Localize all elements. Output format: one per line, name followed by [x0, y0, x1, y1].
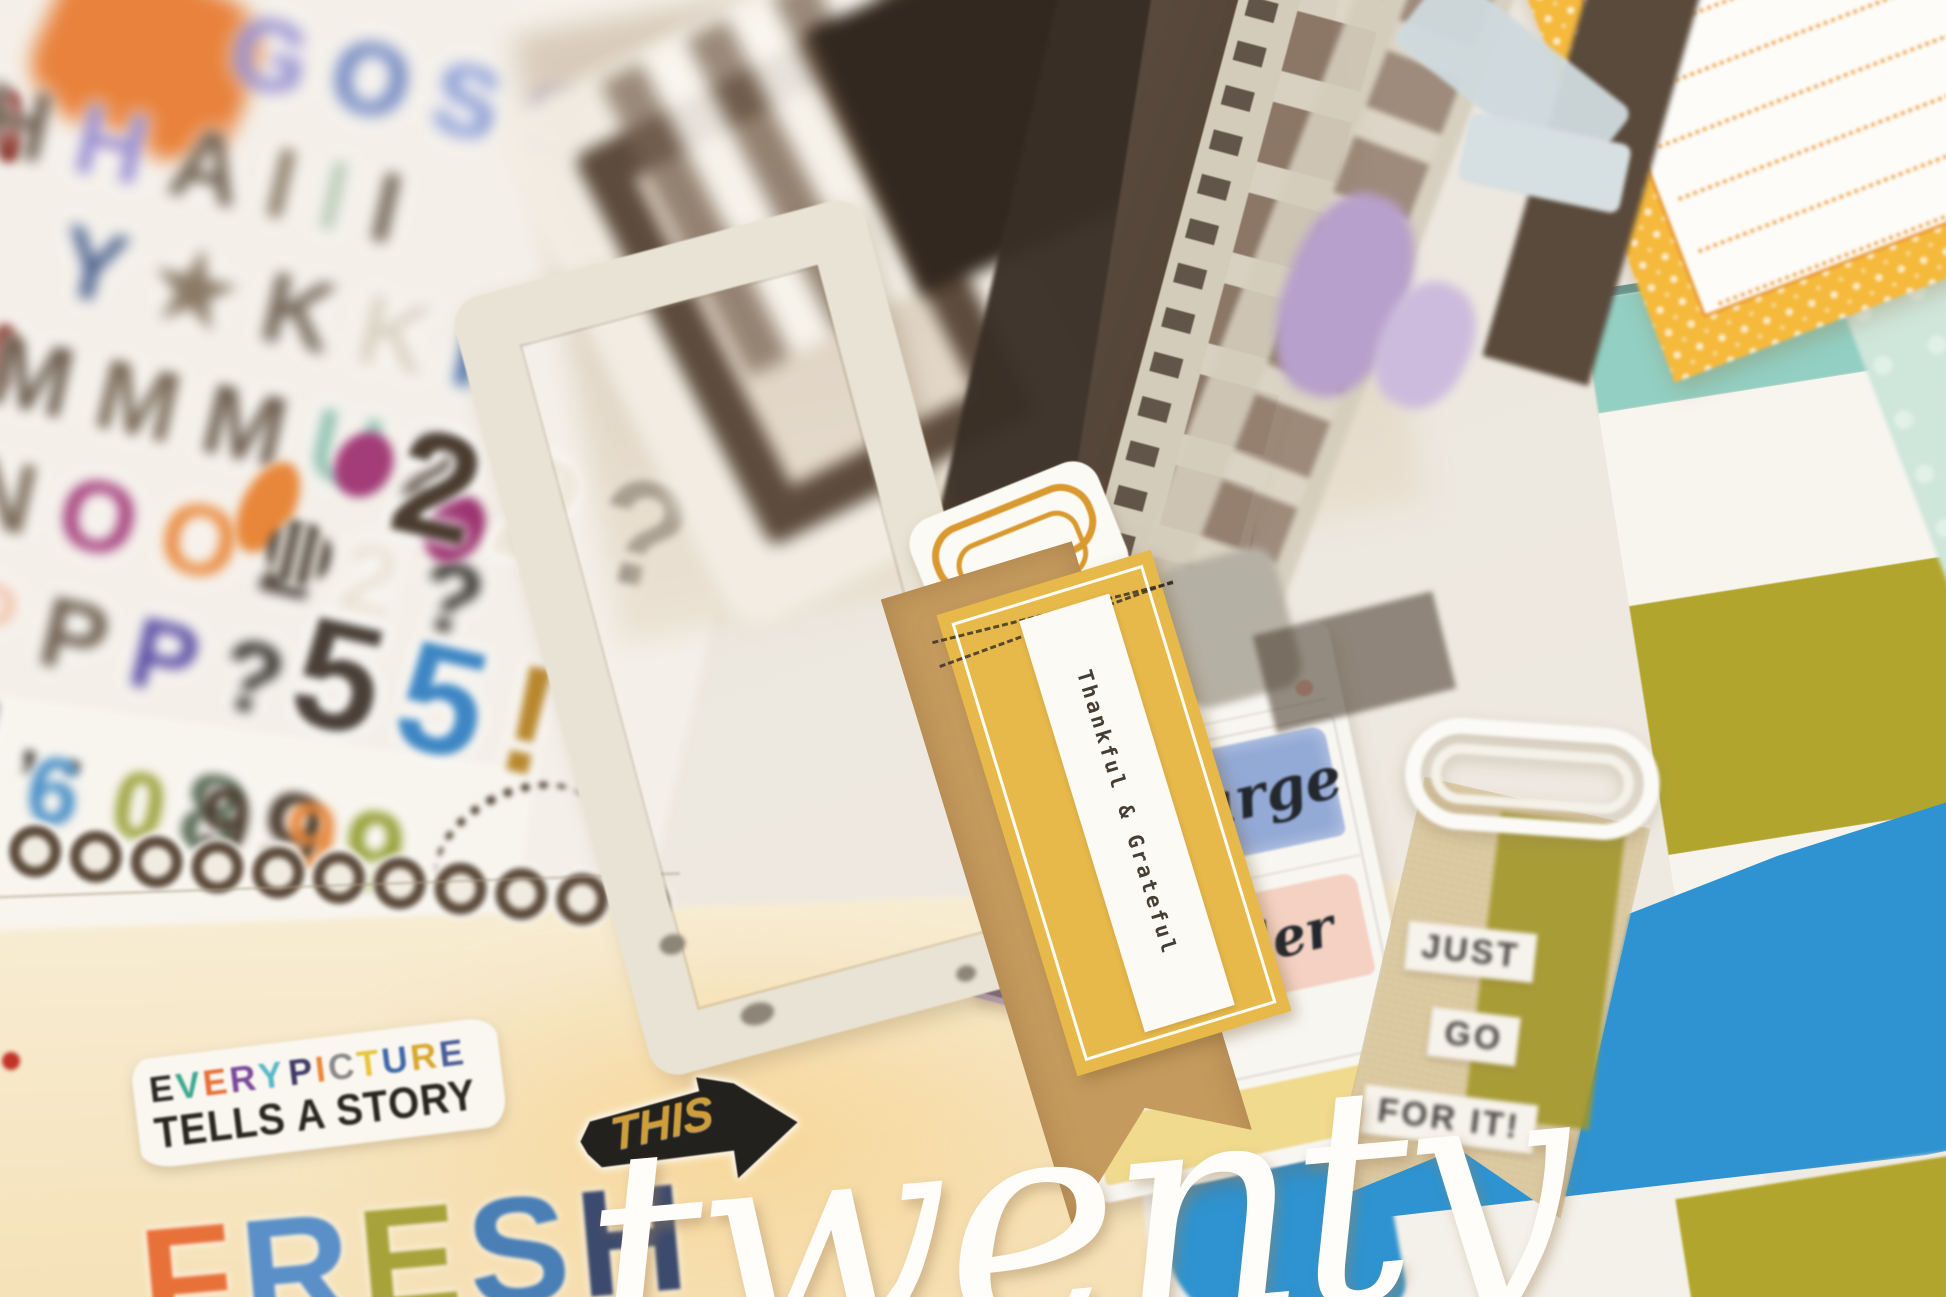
letter-sticker: Y [49, 209, 136, 321]
fresh-letter: R [236, 1198, 357, 1297]
letter-sticker: P [121, 601, 208, 713]
colored-letter: C [326, 1048, 356, 1087]
fresh-letter: S [462, 1179, 575, 1297]
punctuation-sticker: ! [0, 690, 7, 766]
letter-sticker: O [49, 460, 147, 575]
key-sticker [7, 823, 63, 879]
colored-letter: E [201, 1063, 229, 1102]
key-sticker [311, 850, 367, 906]
letter-sticker: P [0, 560, 28, 672]
letter-sticker: P [30, 581, 117, 693]
colored-letter: U [380, 1041, 410, 1080]
letter-sticker: M [86, 343, 190, 459]
colored-letter: E [147, 1070, 175, 1109]
letter-sticker: H [0, 66, 62, 180]
colored-letter: T [355, 1045, 381, 1083]
colored-letter: I [313, 1051, 327, 1088]
scrapbook-flatlay-photo: GOSS HHAIII Y★KKK ZMMMU2 NNOO22? PPPP? ,… [0, 0, 1946, 1297]
letter-sticker: H [65, 88, 158, 202]
letter-sticker: K [252, 256, 345, 370]
letter-sticker: N [0, 438, 46, 552]
letter-sticker: K [348, 278, 441, 392]
colored-letter: Y [256, 1056, 284, 1095]
letter-sticker: O [322, 22, 420, 137]
letter-sticker: I [309, 144, 359, 248]
key-sticker [68, 829, 124, 885]
letter-sticker: A [161, 110, 254, 224]
paperclip-sticker [1401, 714, 1663, 844]
key-sticker [250, 845, 306, 901]
colored-letter: R [408, 1038, 438, 1077]
letter-sticker: M [0, 318, 83, 434]
key-sticker [129, 834, 185, 890]
fresh-letter: E [353, 1188, 466, 1297]
colored-letter: E [437, 1034, 465, 1073]
letter-sticker: O [150, 483, 248, 598]
colored-letter: P [286, 1053, 314, 1092]
number-sticker: 5 [383, 615, 502, 785]
letter-sticker: I [361, 156, 411, 260]
red-dot [2, 1052, 20, 1070]
letter-sticker: ? [211, 622, 293, 733]
fresh-letter: F [135, 1208, 239, 1297]
letter-sticker: G [221, 0, 319, 113]
key-sticker [432, 860, 488, 916]
letter-sticker: ★ [139, 230, 249, 348]
colored-letter: R [228, 1060, 258, 1099]
key-sticker [493, 866, 549, 922]
colored-letter: V [174, 1067, 202, 1106]
letter-sticker: I [256, 132, 306, 236]
